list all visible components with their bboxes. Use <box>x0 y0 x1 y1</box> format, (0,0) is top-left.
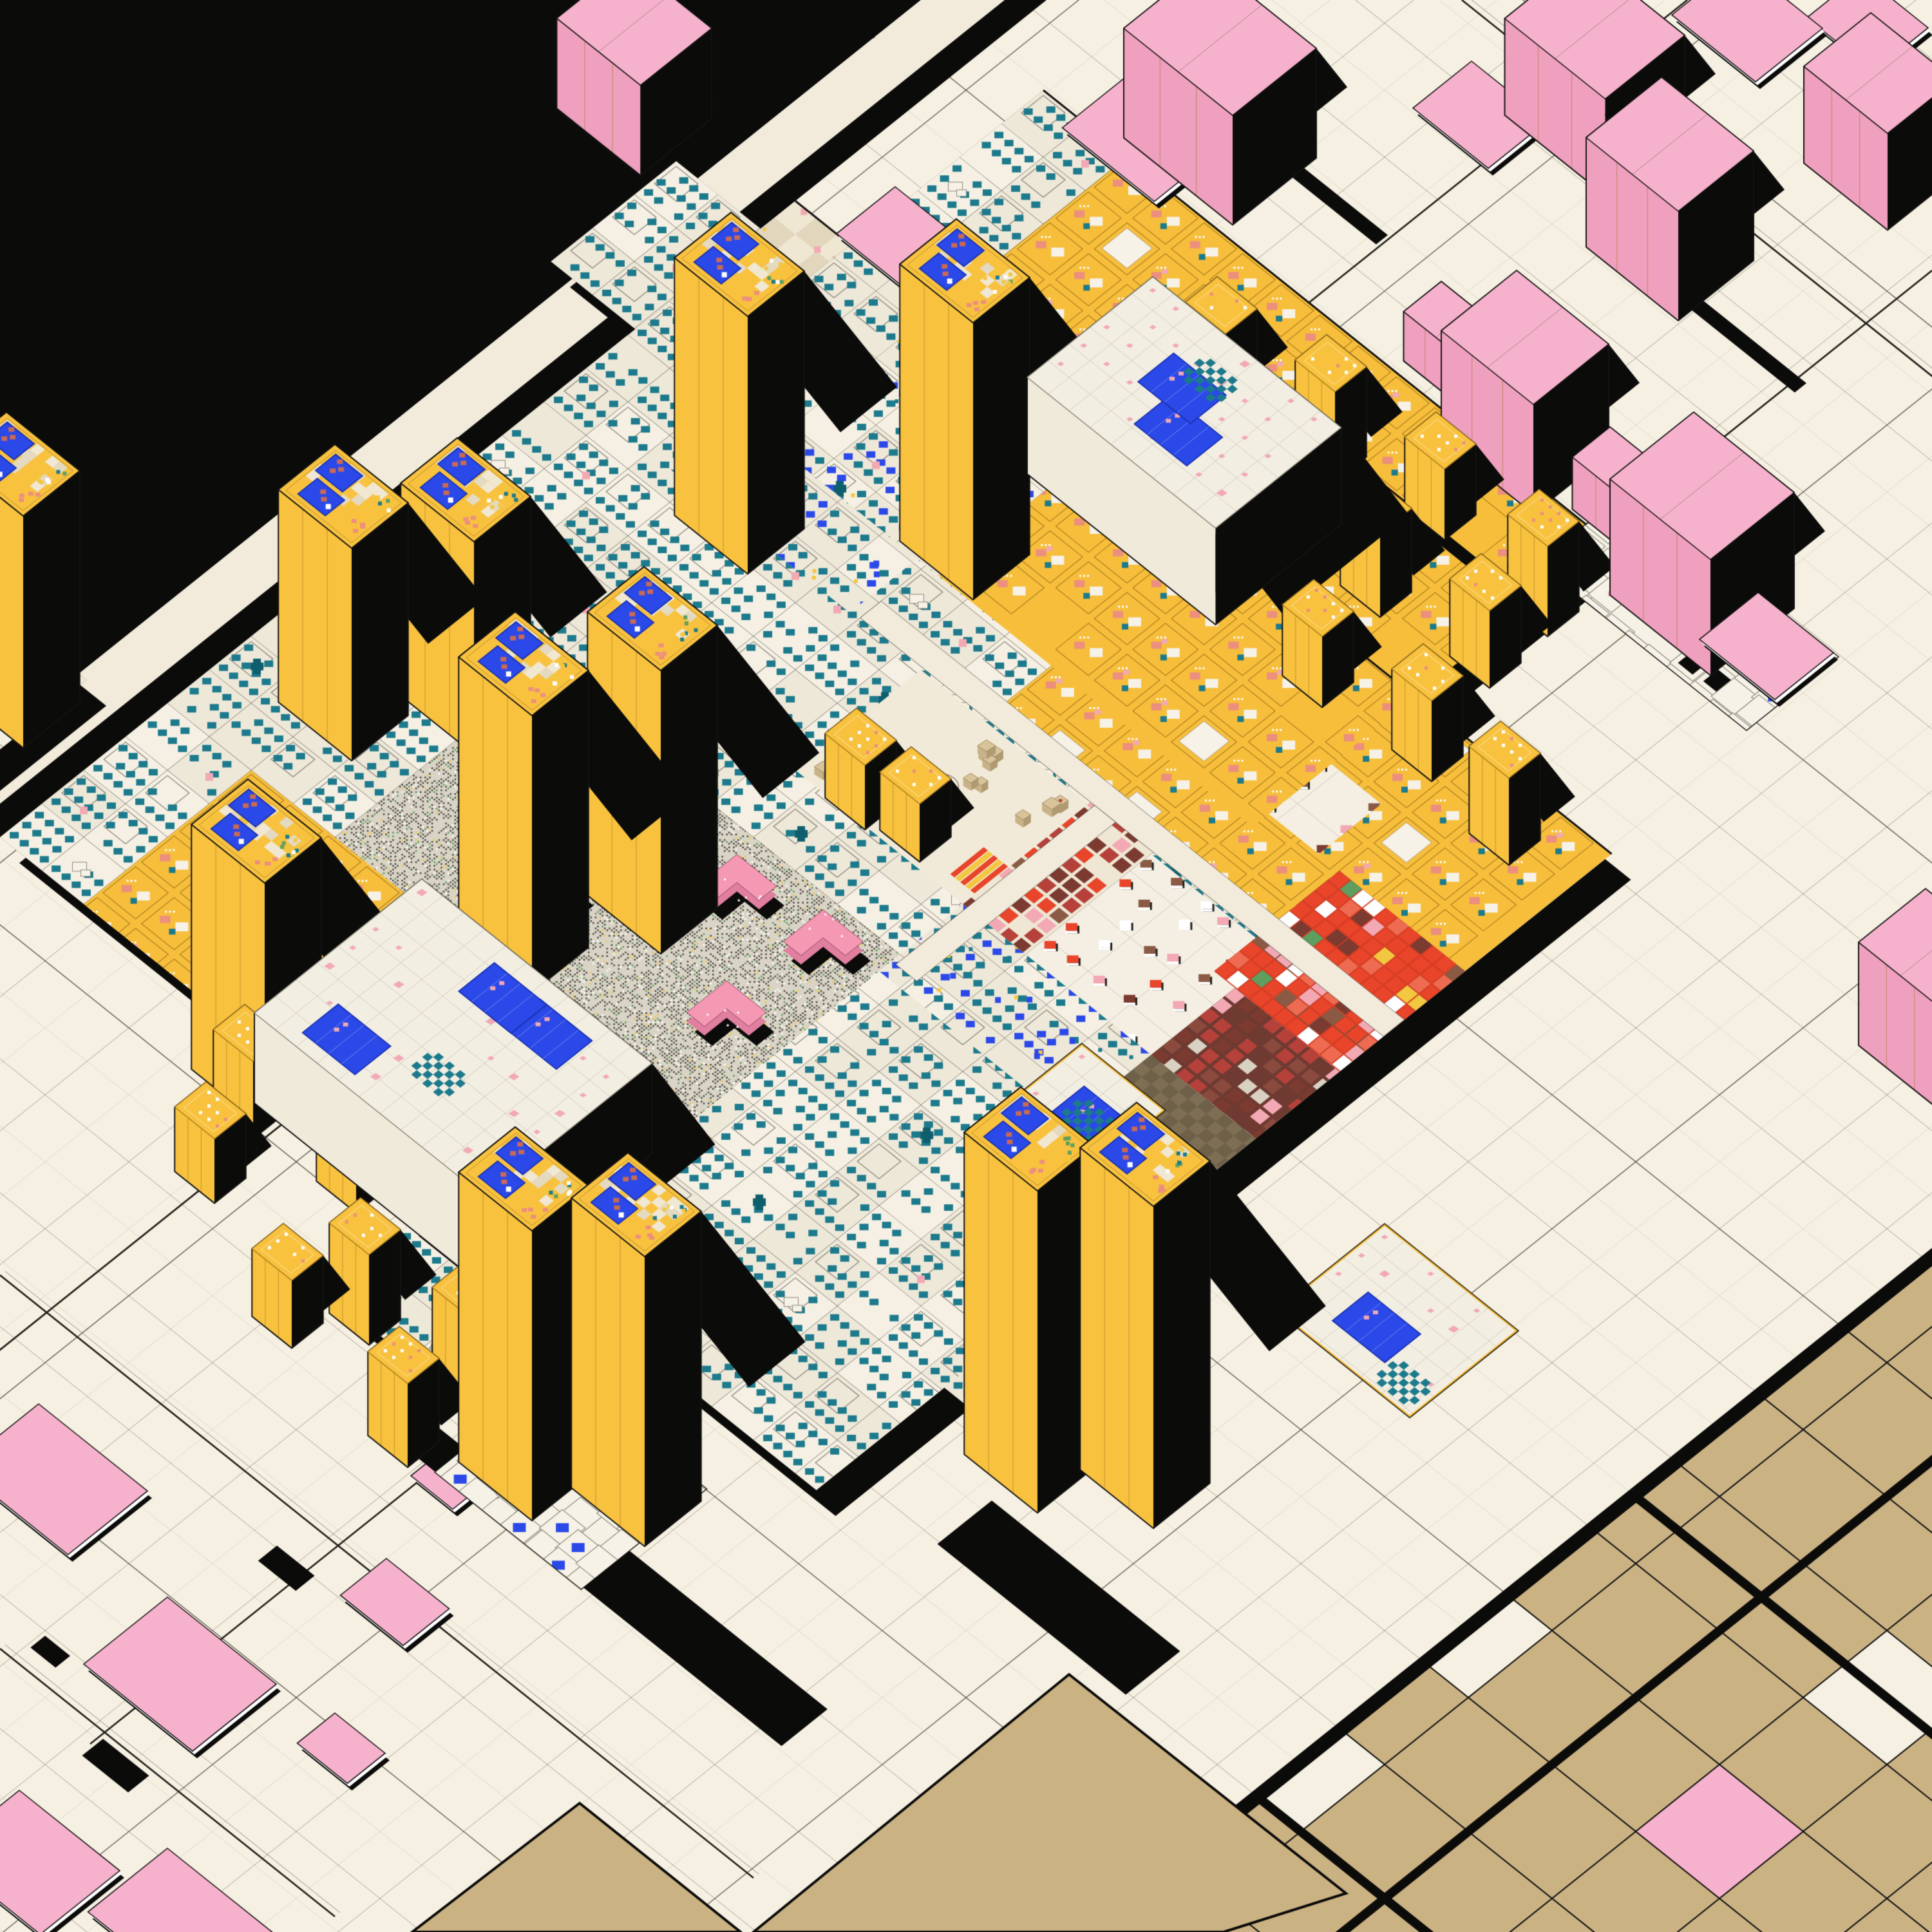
city-canvas <box>0 0 1932 1932</box>
generative-iso-city <box>0 0 1932 1932</box>
